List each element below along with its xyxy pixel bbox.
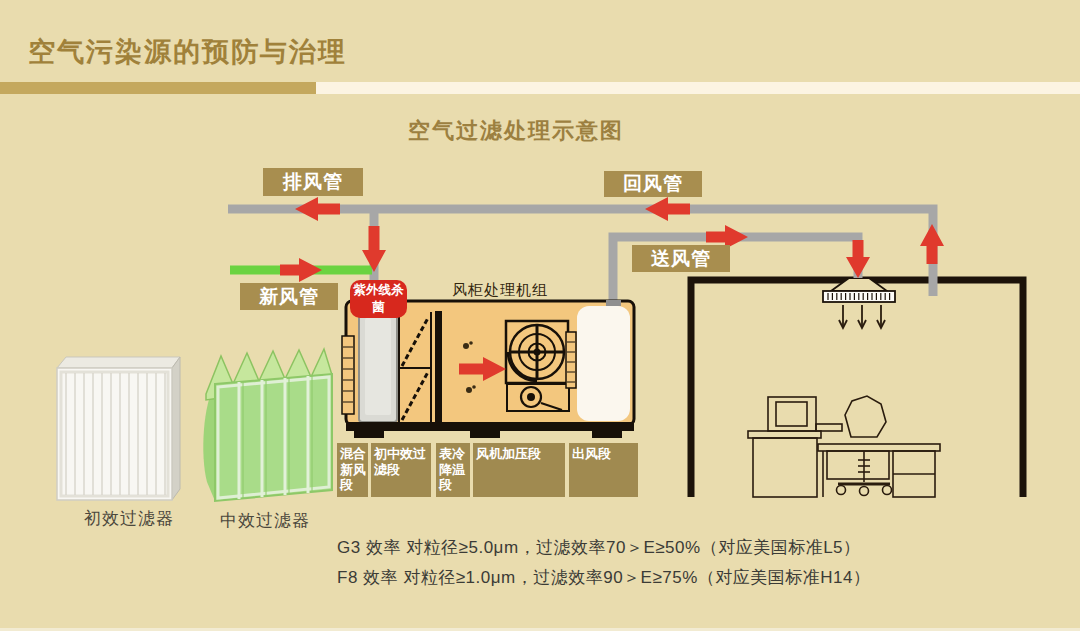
cabinet-top: [748, 431, 821, 438]
return-up-arrow: [920, 224, 944, 264]
ahu-section-outlet: 出风段: [569, 443, 638, 497]
ahu-section-mixing: 混合新风段: [337, 443, 368, 497]
return-arrow: [645, 197, 690, 221]
fresh-air-arrow: [280, 258, 322, 282]
primary-filter-photo: [57, 357, 180, 500]
spec-line-f8: F8 效率 对粒径≥1.0μm，过滤效率90＞E≥75%（对应美国标准H14）: [337, 566, 871, 589]
fresh-duct-label: 新风管: [240, 283, 338, 310]
room-furniture: [748, 396, 940, 497]
medium-filter-caption: 中效过滤器: [220, 509, 310, 532]
cabinet: [753, 438, 817, 497]
desk-top: [818, 444, 940, 451]
exhaust-duct-label: 排风管: [263, 168, 363, 196]
ahu-section-fan: 风机加压段: [473, 443, 565, 497]
return-duct-label: 回风管: [604, 171, 702, 197]
supply-duct-label: 送风管: [632, 245, 730, 272]
slide: 空气污染源的预防与治理 空气过滤处理示意图: [0, 0, 1080, 631]
outlet-louver: [566, 332, 576, 388]
ahu-section-filter: 初中效过滤段: [371, 443, 431, 497]
exhaust-arrow: [295, 197, 340, 221]
ahu-base: [346, 422, 634, 431]
medium-filter-photo: [203, 349, 332, 501]
keyboard: [816, 424, 842, 431]
diffuser-down-arrow: [846, 240, 870, 278]
mix-down-arrow: [362, 226, 386, 272]
ahu-title: 风柜处理机组: [452, 281, 548, 300]
crt-screen: [776, 402, 807, 426]
spec-line-g3: G3 效率 对粒径≥5.0μm，过滤效率70＞E≥50%（对应美国标准L5）: [337, 536, 861, 559]
chair-wheel: [883, 486, 892, 495]
uv-sterilization-badge: 紫外线杀菌: [350, 280, 407, 318]
clean-room-walls: [691, 280, 1023, 497]
room-airflow-arrows: [839, 305, 885, 328]
chair-wheel: [837, 486, 846, 495]
chair-back: [845, 396, 886, 437]
primary-filter-caption: 初效过滤器: [84, 507, 174, 530]
ahu-section-cooling: 表冷降温段: [436, 443, 470, 497]
ahu-outlet-section: [577, 306, 630, 421]
desk-panel: [827, 451, 889, 479]
chair-wheel: [860, 487, 869, 496]
